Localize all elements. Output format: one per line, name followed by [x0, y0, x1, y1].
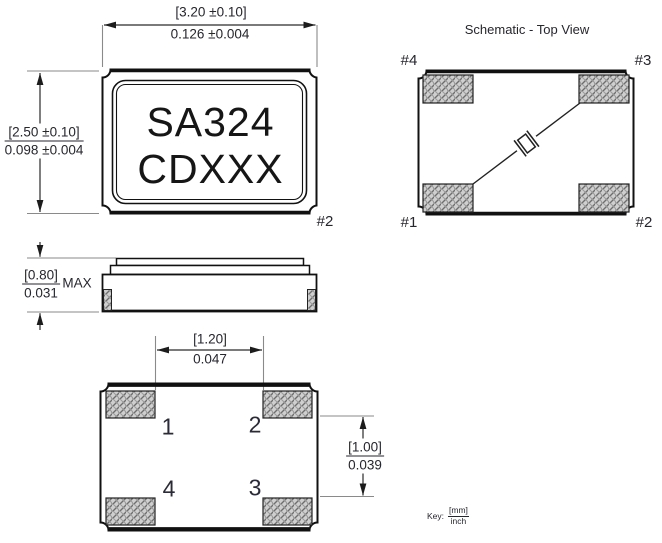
bottom-pad-3	[263, 498, 312, 525]
side-body	[103, 275, 317, 312]
bottom-pad-4	[106, 498, 155, 525]
schematic-pin1-label: #1	[401, 215, 418, 232]
units-key-label: Key:	[427, 511, 444, 521]
package-dimension-drawing: [3.20 ±0.10] 0.126 ±0.004 [2.50 ±0.10] 0…	[0, 0, 662, 543]
side-pad-left	[104, 290, 112, 311]
bottom-pad-2-label: 2	[249, 412, 262, 437]
units-key-inch: inch	[448, 517, 469, 527]
top-width-inch-label: 0.126 ±0.004	[171, 28, 250, 43]
side-height-dim-label: [0.80] 0.031	[20, 267, 62, 302]
bottom-pad-3-label: 3	[249, 475, 262, 500]
units-key-fraction: [mm] inch	[448, 506, 469, 527]
side-height-mm-label: [0.80]	[22, 268, 60, 285]
bottom-span-mm-label: [1.00]	[346, 440, 384, 457]
side-pad-right	[308, 290, 316, 311]
bottom-pad-4-label: 4	[163, 476, 176, 501]
schematic-title: Schematic - Top View	[465, 23, 590, 37]
top-height-dim-label: [2.50 ±0.10] 0.098 ±0.004	[3, 124, 86, 159]
bottom-pitch-inch-label: 0.047	[193, 353, 227, 368]
units-key: Key: [mm] inch	[427, 506, 469, 527]
side-lid-top	[117, 259, 304, 266]
bottom-pad-2	[263, 391, 312, 418]
schematic-pad-1	[423, 184, 473, 212]
bottom-view-pads	[106, 391, 312, 525]
bottom-pad-1-label: 1	[162, 414, 175, 439]
schematic-pad-2	[579, 184, 629, 212]
top-height-mm-label: [2.50 ±0.10]	[5, 125, 84, 142]
part-marking: SA324 CDXXX	[113, 82, 308, 204]
top-height-inch-label: 0.098 ±0.004	[5, 142, 84, 158]
side-view-outline	[103, 259, 317, 312]
schematic-pin2-label: #2	[636, 215, 653, 232]
drawing-linework	[0, 0, 662, 543]
schematic-pad-4	[423, 75, 473, 103]
side-height-inch-label: 0.031	[22, 285, 60, 301]
part-marking-line2: CDXXX	[137, 146, 283, 193]
crystal-symbol	[473, 103, 580, 184]
side-lid-base	[111, 266, 310, 275]
top-view-pin2-label: #2	[317, 214, 334, 231]
schematic-pad-3	[579, 75, 629, 103]
bottom-pad-1	[106, 391, 155, 418]
bottom-pitch-mm-label: [1.20]	[193, 333, 227, 348]
bottom-span-dim-label: [1.00] 0.039	[344, 439, 386, 474]
schematic-pin3-label: #3	[635, 53, 652, 70]
schematic-pin4-label: #4	[401, 53, 418, 70]
side-height-max-label: MAX	[62, 277, 91, 292]
bottom-span-inch-label: 0.039	[346, 457, 384, 473]
top-width-mm-label: [3.20 ±0.10]	[175, 6, 246, 21]
part-marking-line1: SA324	[146, 99, 274, 146]
